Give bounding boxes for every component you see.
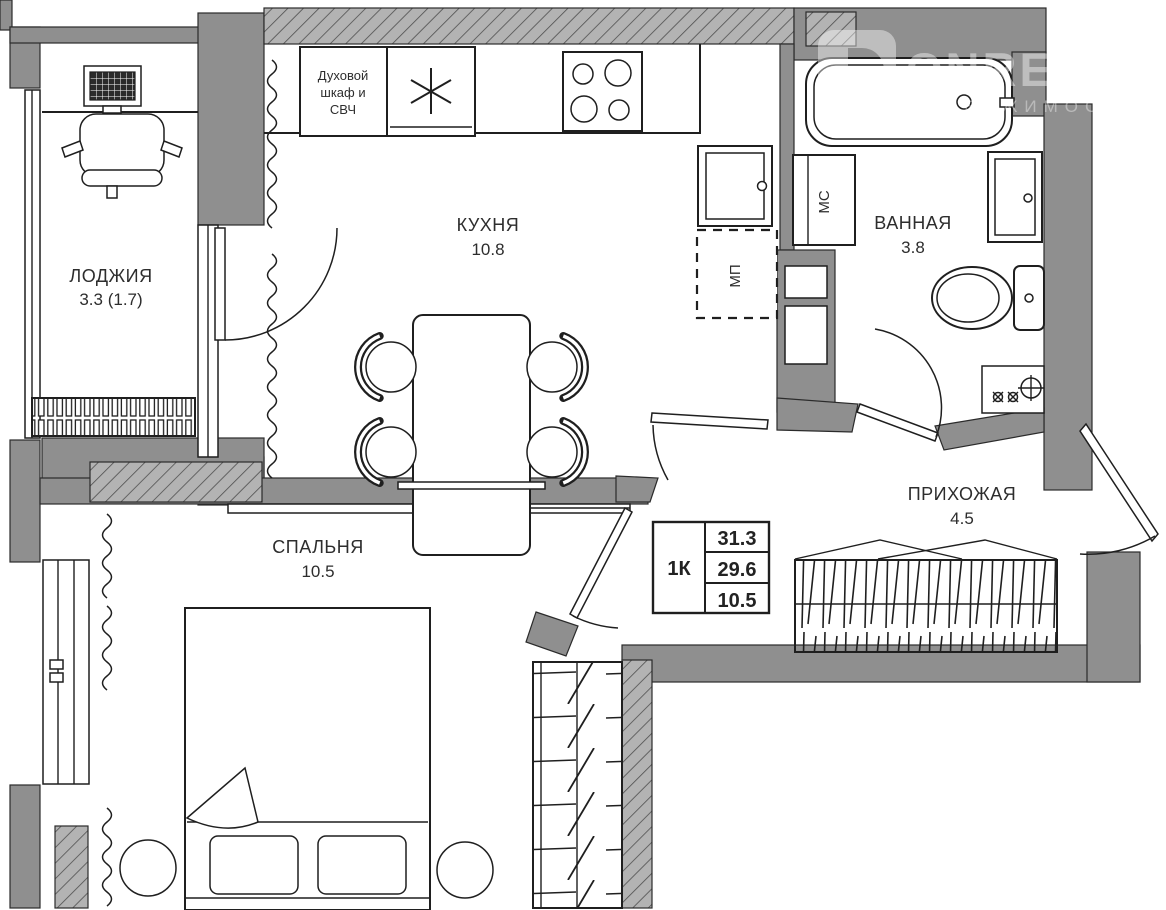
oven-label-line2: шкаф и (320, 85, 365, 100)
bedroom-label: СПАЛЬНЯ (272, 537, 363, 557)
hallway-furniture: 1К 31.3 29.6 10.5 (653, 522, 1057, 652)
wall-bedroom-left-hatched-pier (55, 826, 88, 908)
bathroom-area: 3.8 (901, 238, 925, 257)
balcony-door-arc (225, 228, 337, 340)
stove-burner-3 (571, 96, 597, 122)
wall-entry-bottom-block (1087, 552, 1140, 682)
bed-pillow-right (318, 836, 406, 894)
kitchen-curtain-upper (268, 60, 277, 228)
dining-chair-bottom-left (358, 421, 416, 483)
info-table-row-1: 31.3 (718, 528, 757, 550)
kitchen-curtain-lower (268, 254, 277, 478)
bedroom-curtain-lower (103, 808, 112, 906)
bedroom-window (43, 560, 89, 784)
bedroom-door-leaf (570, 508, 632, 618)
bedside-table-left (120, 840, 176, 896)
bathroom-sink-drain (1024, 194, 1032, 202)
dining-bench (398, 482, 545, 489)
loggia-furniture (32, 66, 198, 436)
toilet-bowl-inner (937, 274, 999, 322)
toilet-tank-button (1025, 294, 1033, 302)
bedside-table-right (437, 842, 493, 898)
wall-corner-top-left (0, 0, 12, 30)
kitchen-hall-door-leaf (651, 413, 768, 429)
radiator (32, 398, 195, 436)
water-meter-box (982, 366, 1044, 413)
loggia-area: 3.3 (1.7) (79, 290, 142, 309)
bathroom-door-leaf (857, 404, 938, 441)
floor-plan: 1К 31.3 29.6 10.5 (0, 0, 1166, 910)
bedroom-door-arc (573, 616, 618, 628)
washing-machine-label: МС (816, 190, 833, 213)
stove-burner-1 (573, 64, 593, 84)
kitchen-appliance-inner (706, 153, 764, 219)
info-table-row-3: 10.5 (718, 590, 757, 612)
dining-table (413, 315, 530, 555)
stove-burner-2 (605, 60, 631, 86)
info-table-type: 1К (667, 558, 691, 580)
hallway-area: 4.5 (950, 509, 974, 528)
dining-chair-top-right (527, 336, 585, 398)
wall-loggia-top (10, 27, 218, 43)
bed-pillow-left (210, 836, 298, 894)
bedroom-furniture (103, 514, 623, 910)
dining-chair-bottom-right (527, 421, 585, 483)
wall-junction-kitchen-door-left (616, 476, 658, 502)
oven-label-line1: Духовой (318, 68, 368, 83)
wall-bedroom-right-hatched (622, 660, 652, 908)
office-chair-back (82, 170, 162, 186)
wall-junction-bedroom-door (526, 612, 578, 656)
kitchen-hall-door-arc (653, 425, 668, 480)
shaft-niche-upper (785, 266, 827, 298)
bedroom-wardrobe (533, 662, 622, 908)
wall-left-lower (10, 785, 40, 908)
wall-kitchen-top-hatched (264, 8, 794, 44)
bedroom-area: 10.5 (301, 562, 334, 581)
kitchen-appliance-handle (758, 182, 767, 191)
office-chair-seat (80, 114, 164, 176)
floor-plan-drawing: 1К 31.3 29.6 10.5 (0, 0, 1166, 910)
stove-burner-4 (609, 100, 629, 120)
wall-loggia-divider-top (198, 13, 264, 225)
balcony-door-leaf (215, 228, 225, 340)
hallway-wardrobe (795, 540, 1057, 652)
wall-left-middle (10, 440, 40, 562)
oven-label-line3: СВЧ (330, 102, 356, 117)
bedroom-curtain-upper (103, 514, 112, 598)
bedroom-curtain-middle (103, 606, 112, 690)
dishwasher-label: МП (727, 264, 744, 287)
shaft-niche-lower (785, 306, 827, 364)
dining-chair-top-left (358, 336, 416, 398)
desk-monitor-screen (90, 72, 135, 100)
kitchen-area: 10.8 (471, 240, 504, 259)
hallway-label: ПРИХОЖАЯ (908, 484, 1017, 504)
loggia-label: ЛОДЖИЯ (69, 266, 152, 286)
wall-junction-bath-door-right (935, 408, 1044, 450)
watermark-tagline: НЕДВИЖИМОСТЬ (908, 97, 1139, 116)
watermark-brand: ONREALT (906, 43, 1151, 96)
office-chair-stem (107, 186, 117, 198)
bedroom-window-latch-2 (50, 673, 63, 682)
info-table: 1К 31.3 29.6 10.5 (653, 522, 769, 613)
monitor-stand (103, 106, 121, 113)
kitchen-label: КУХНЯ (457, 215, 520, 235)
bathroom-label: ВАННАЯ (874, 213, 951, 233)
wall-bedroom-top-hatched (90, 462, 262, 502)
wall-kitchen-bathroom-divider (780, 44, 794, 250)
info-table-row-2: 29.6 (718, 559, 757, 581)
wall-junction-bath-door-left (777, 398, 858, 432)
bedroom-window-latch-1 (50, 660, 63, 669)
